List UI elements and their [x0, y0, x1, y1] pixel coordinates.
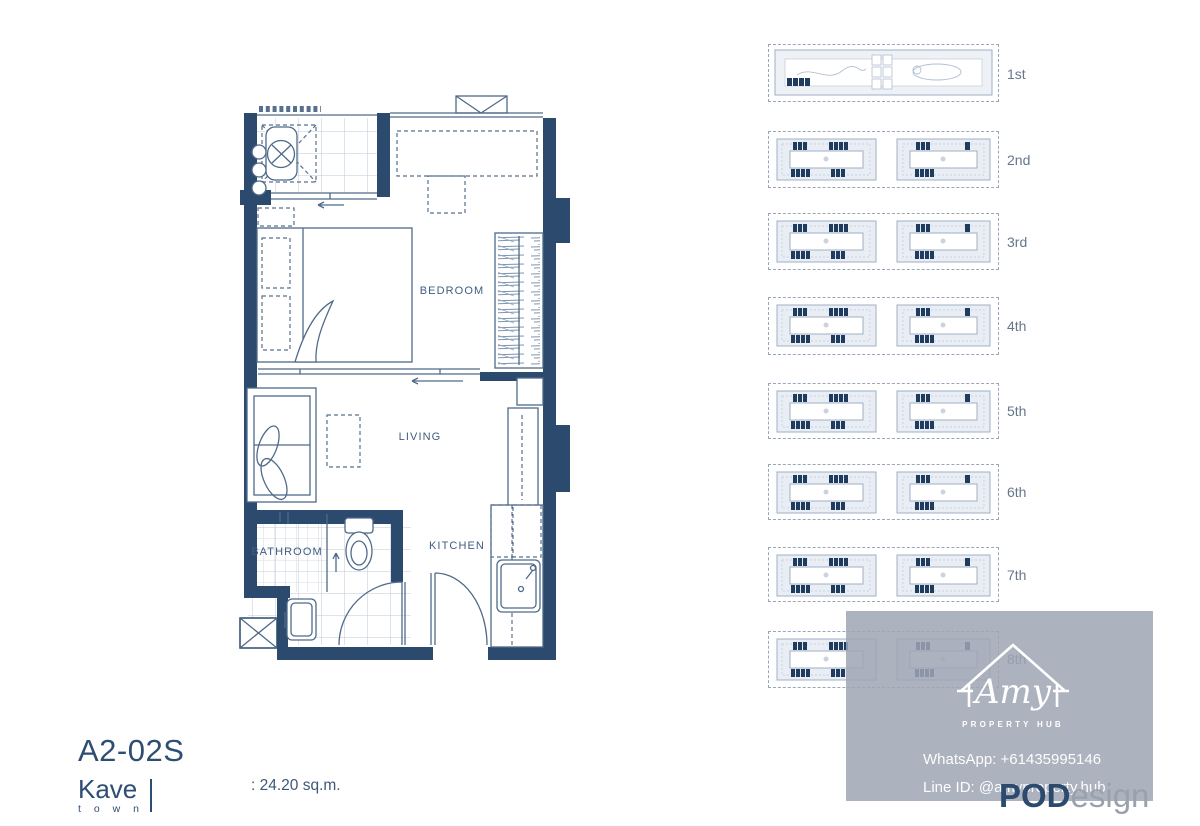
property-hub-text: PROPERTY HUB [962, 720, 1064, 729]
bedroom-window [390, 96, 543, 117]
living-room: LIVING [247, 378, 543, 507]
kave-town-logo: Kave t o w n [78, 776, 144, 815]
floor-label-5th: 5th [1007, 403, 1051, 419]
brand-sub: t o w n [78, 803, 144, 815]
floor-label-1st: 1st [1007, 66, 1051, 82]
flyer-page: BEDROOM LIVING [0, 0, 1200, 826]
floor-label-7th: 7th [1007, 567, 1051, 583]
floor-key-row-2 [768, 131, 999, 188]
condenser-icon [456, 96, 507, 113]
floor-key-row-4 [768, 297, 999, 355]
kitchen-sink-icon [497, 560, 540, 612]
floor-key-row-7 [768, 547, 999, 602]
floor-label-2nd: 2nd [1007, 152, 1051, 168]
bedroom-label: BEDROOM [420, 285, 485, 297]
floor-key-row-3 [768, 213, 999, 270]
floor-key-row-5 [768, 383, 999, 439]
floor-label-6th: 6th [1007, 484, 1051, 500]
wardrobe-icon [495, 233, 543, 368]
bathroom-label: BATHROOM [251, 546, 323, 558]
entrance-door-arc [431, 573, 487, 645]
brand-divider [150, 779, 152, 812]
amy-property-hub-logo: Amy PROPERTY HUB [951, 633, 1075, 733]
sofa-icon [247, 388, 316, 503]
shaft-icon [240, 618, 277, 648]
louvre-window-icon [252, 145, 266, 195]
amy-script: Amy [972, 672, 1052, 712]
unit-area: : 24.20 sq.m. [251, 777, 341, 795]
tv-cabinet-icon [508, 378, 543, 507]
bedroom-sliding-door [258, 369, 480, 384]
podesign-logo: PODesign [999, 777, 1149, 815]
floor-label-3rd: 3rd [1007, 234, 1051, 250]
floor-key-row-1 [768, 44, 999, 102]
kitchen-label: KITCHEN [429, 540, 485, 552]
washing-machine-icon [266, 127, 297, 180]
bed-icon [257, 208, 412, 362]
whatsapp-contact: WhatsApp: +61435995146 [923, 751, 1101, 768]
podesign-light: esign [1071, 777, 1150, 814]
coffee-table-icon [327, 415, 360, 467]
brand-name: Kave [78, 776, 144, 802]
balcony-sliding-door [271, 193, 377, 208]
floor-key-row-6 [768, 464, 999, 520]
floor-label-4th: 4th [1007, 318, 1051, 334]
podesign-bold: POD [999, 777, 1071, 814]
unit-code-title: A2-02S [78, 733, 184, 769]
living-label: LIVING [399, 431, 442, 443]
vanity-sink-icon [285, 599, 316, 640]
kitchen: KITCHEN [429, 505, 543, 647]
toilet-icon [345, 518, 373, 570]
watermark-overlay: Amy PROPERTY HUB WhatsApp: +61435995146 … [846, 611, 1153, 801]
